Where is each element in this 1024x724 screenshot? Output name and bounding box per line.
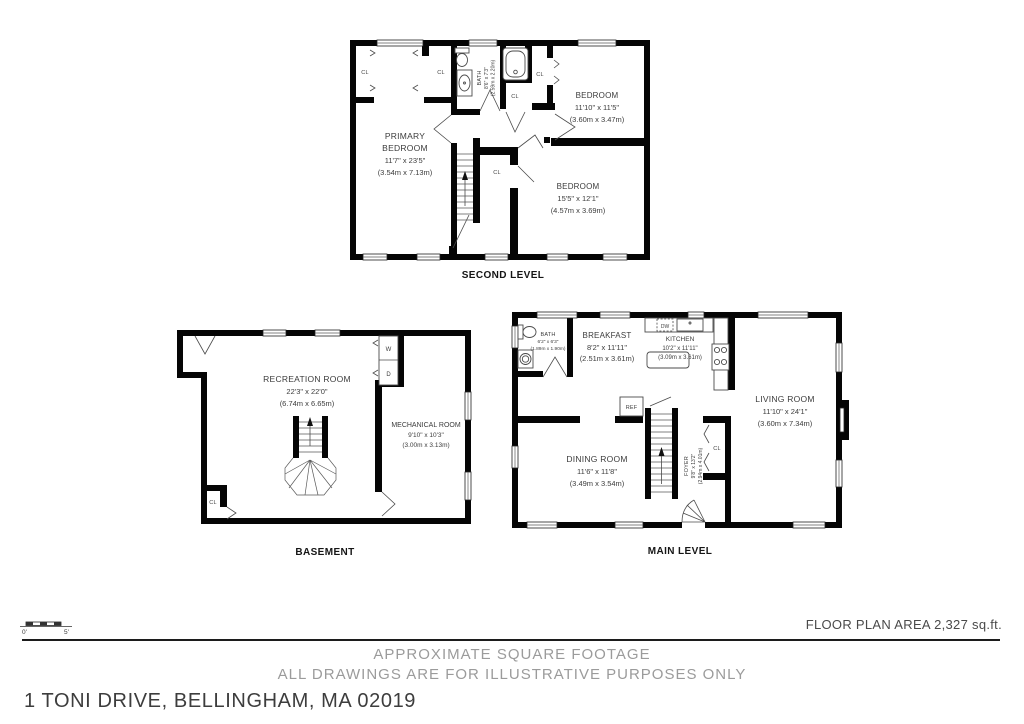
window <box>793 522 825 528</box>
window <box>537 312 577 318</box>
window <box>615 522 643 528</box>
closet-label: CL <box>209 500 216 506</box>
primary-bedroom-dim-ft: 11'7" x 23'5" <box>385 156 426 165</box>
disclaimer-illustrative: ALL DRAWINGS ARE FOR ILLUSTRATIVE PURPOS… <box>0 666 1024 683</box>
window <box>512 446 518 468</box>
recreation-room-label: RECREATION ROOM <box>263 374 351 384</box>
floor-plan-area-note: FLOOR PLAN AREA 2,327 sq.ft. <box>806 617 1002 632</box>
svg-text:11'6" x 11'8": 11'6" x 11'8" <box>577 467 617 476</box>
svg-text:10'2" x 11'11": 10'2" x 11'11" <box>662 346 697 352</box>
window <box>417 254 440 260</box>
windows <box>263 330 471 500</box>
dishwasher-label: DW <box>661 324 670 330</box>
bathtub-icon <box>503 48 528 80</box>
foyer-label: FOYER <box>684 456 690 476</box>
staircase <box>457 154 473 220</box>
window <box>836 343 842 372</box>
window <box>512 326 518 348</box>
svg-text:15'5" x 12'1": 15'5" x 12'1" <box>557 194 598 203</box>
bath-dim-ft: 8'6" x 7'3" <box>484 67 490 89</box>
svg-text:22'3" x 22'0": 22'3" x 22'0" <box>286 387 327 396</box>
svg-text:11'10" x 24'1": 11'10" x 24'1" <box>763 407 808 416</box>
bath-label: BATH <box>540 332 555 338</box>
window <box>688 312 704 318</box>
window <box>547 254 568 260</box>
svg-text:(3.09m x 3.61m): (3.09m x 3.61m) <box>658 355 702 361</box>
main-level-title: MAIN LEVEL <box>510 546 850 557</box>
closet-label: CL <box>713 446 720 452</box>
stove-icon <box>712 344 729 370</box>
mechanical-room-label: MECHANICAL ROOM <box>391 422 461 429</box>
stair-arrow-icon <box>659 447 665 456</box>
svg-text:9'8" x 13'2": 9'8" x 13'2" <box>691 453 697 478</box>
bedroom-right-label: BEDROOM <box>576 91 619 100</box>
room-labels: RECREATION ROOM 22'3" x 22'0" (6.74m x 6… <box>209 374 461 506</box>
primary-bedroom-dim-m: (3.54m x 7.13m) <box>378 168 433 177</box>
living-room-label: LIVING ROOM <box>755 394 814 404</box>
svg-text:6'2" x 6'3": 6'2" x 6'3" <box>538 339 559 345</box>
stair-arrow-icon <box>307 417 313 426</box>
svg-text:(2.94m x 4.01m): (2.94m x 4.01m) <box>698 447 704 484</box>
breakfast-label: BREAKFAST <box>583 331 632 340</box>
toilet-icon <box>455 48 469 67</box>
scale-bar: 0' 5' <box>14 612 94 638</box>
closet-label: CL <box>361 70 368 76</box>
door-swings <box>543 357 709 522</box>
svg-text:(3.60m x 7.34m): (3.60m x 7.34m) <box>758 419 813 428</box>
window <box>315 330 340 336</box>
svg-text:(2.51m x 3.61m): (2.51m x 3.61m) <box>580 354 635 363</box>
closet-label: CL <box>536 72 543 78</box>
window <box>836 460 842 487</box>
window <box>578 40 616 46</box>
window <box>600 312 630 318</box>
window <box>758 312 808 318</box>
window <box>465 392 471 420</box>
divider-rule <box>22 639 1000 641</box>
washer-dryer: W D <box>379 336 398 385</box>
svg-text:(3.49m x 3.54m): (3.49m x 3.54m) <box>570 479 625 488</box>
kitchen-fixtures: DW REF <box>620 318 729 416</box>
sink-icon <box>518 350 533 368</box>
closet-label: CL <box>511 94 518 100</box>
closet-label: CL <box>437 70 444 76</box>
staircase <box>651 414 672 492</box>
floor-plan-sheet: PRIMARY BEDROOM 11'7" x 23'5" (3.54m x 7… <box>0 0 1024 724</box>
bedroom-bottom-label: BEDROOM <box>557 182 600 191</box>
front-door-fan <box>682 500 705 522</box>
second-level-title: SECOND LEVEL <box>348 270 658 281</box>
svg-text:(1.89m x 1.90m): (1.89m x 1.90m) <box>531 346 566 352</box>
scale-five-label: 5' <box>64 629 69 636</box>
svg-text:11'10" x 11'5": 11'10" x 11'5" <box>575 103 620 112</box>
disclaimer-square-footage: APPROXIMATE SQUARE FOOTAGE <box>0 646 1024 663</box>
kitchen-sink-icon <box>677 319 703 331</box>
svg-text:(4.57m x 3.69m): (4.57m x 3.69m) <box>551 206 606 215</box>
primary-bedroom-label: PRIMARY <box>385 131 425 141</box>
window <box>603 254 627 260</box>
svg-text:(6.74m x 6.65m): (6.74m x 6.65m) <box>280 399 335 408</box>
floor-plan-basement: W D RECREATION ROOM 22'3" x 22'0" (6.74m… <box>175 328 475 530</box>
washer-label: W <box>386 347 392 353</box>
staircase <box>285 416 336 495</box>
dining-room-label: DINING ROOM <box>566 454 627 464</box>
closet-label: CL <box>493 170 500 176</box>
kitchen-label: KITCHEN <box>666 336 695 343</box>
toilet-icon <box>518 325 536 339</box>
window <box>485 254 508 260</box>
basement-title: BASEMENT <box>175 547 475 558</box>
window <box>263 330 286 336</box>
svg-text:BEDROOM: BEDROOM <box>382 143 428 153</box>
svg-text:8'2" x 11'11": 8'2" x 11'11" <box>587 343 627 352</box>
svg-text:(3.00m x 3.13m): (3.00m x 3.13m) <box>402 442 449 449</box>
bath-label: BATH <box>477 70 483 85</box>
floor-plan-second-level: PRIMARY BEDROOM 11'7" x 23'5" (3.54m x 7… <box>348 38 652 262</box>
refrigerator-box: REF <box>620 397 643 416</box>
dryer-label: D <box>386 372 391 378</box>
svg-text:(3.60m x 3.47m): (3.60m x 3.47m) <box>570 115 625 124</box>
floor-plan-main-level: DW REF BATH 6'2" x 6'3" (1.89m x 1.9 <box>510 310 850 532</box>
bath-dim-m: (2.59m x 2.20m) <box>491 59 497 96</box>
window <box>377 40 423 46</box>
property-address: 1 TONI DRIVE, BELLINGHAM, MA 02019 <box>24 690 416 713</box>
window <box>527 522 557 528</box>
window <box>363 254 387 260</box>
room-labels: PRIMARY BEDROOM 11'7" x 23'5" (3.54m x 7… <box>361 59 625 215</box>
scale-zero-label: 0' <box>22 629 27 636</box>
refrigerator-label: REF <box>626 405 638 411</box>
svg-text:9'10" x 10'3": 9'10" x 10'3" <box>408 432 444 439</box>
window <box>469 40 497 46</box>
window <box>465 472 471 500</box>
sink-icon <box>457 70 472 96</box>
